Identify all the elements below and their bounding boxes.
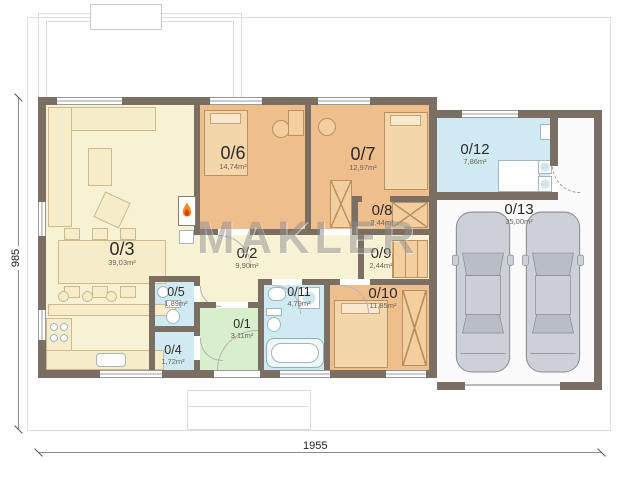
stool — [58, 291, 69, 302]
room-label: 0/12 7,86m² — [435, 142, 515, 166]
stove-burner — [50, 334, 58, 342]
car — [452, 210, 514, 379]
room-id: 0/3 — [82, 240, 162, 258]
room-area: 1,72m² — [143, 358, 203, 366]
chair — [318, 118, 336, 136]
window — [38, 202, 46, 236]
wall — [149, 276, 200, 282]
wall — [390, 196, 437, 202]
stool — [82, 291, 93, 302]
room-id: 0/5 — [146, 286, 206, 299]
fireplace — [178, 196, 196, 226]
window — [318, 97, 370, 105]
bathtub-inner — [271, 343, 319, 363]
wall — [248, 302, 264, 308]
chair — [120, 286, 136, 298]
window — [100, 370, 162, 378]
wall — [429, 97, 437, 378]
room-label: 0/7 12,97m² — [323, 145, 403, 172]
wall — [437, 192, 558, 200]
wall — [437, 382, 465, 390]
room-area: 11,85m² — [348, 302, 418, 310]
utility-unit — [538, 176, 552, 192]
room-id: 0/13 — [479, 202, 559, 217]
toilet-bowl — [166, 309, 180, 324]
room-id: 0/12 — [435, 142, 515, 157]
room-label: 0/5 1,89m² — [146, 286, 206, 307]
room-area: 35,00m² — [479, 218, 559, 226]
wall — [149, 326, 200, 332]
room-area: 7,86m² — [435, 158, 515, 166]
room-label: 0/6 14,74m² — [193, 144, 273, 171]
room-label: 0/10 11,85m² — [348, 286, 418, 310]
room-area: 3,11m² — [212, 332, 272, 340]
car — [522, 210, 584, 379]
room-id: 0/4 — [143, 344, 203, 357]
fireplace-flame-icon — [181, 201, 193, 224]
wall — [550, 110, 558, 166]
room-id: 0/6 — [193, 144, 273, 162]
bathtub — [266, 338, 324, 368]
dimension-line — [38, 452, 602, 453]
window — [462, 110, 518, 118]
porch-step — [187, 406, 309, 407]
window — [57, 97, 122, 105]
chimney — [90, 4, 162, 30]
stove-burner — [50, 323, 58, 331]
dimension-height: 985 — [10, 246, 22, 270]
entry-door — [214, 370, 260, 378]
pillow — [390, 115, 421, 126]
pillow — [210, 113, 241, 124]
room-label: 0/4 1,72m² — [143, 344, 203, 365]
room-area: 12,97m² — [323, 164, 403, 172]
room-label: 0/3 39,03m² — [82, 240, 162, 267]
sofa — [48, 107, 72, 227]
coffee-table — [88, 148, 112, 186]
stove-burner — [60, 323, 68, 331]
kitchen-sink — [96, 353, 126, 367]
garage-door — [465, 384, 560, 386]
fixture — [179, 230, 194, 244]
wall — [560, 382, 602, 390]
room-label: 0/11 4,79m² — [269, 286, 329, 307]
room-id: 0/1 — [212, 318, 272, 331]
window — [280, 370, 330, 378]
room-area: 39,03m² — [82, 259, 162, 267]
chair — [92, 228, 108, 240]
watermark: MAKLER — [197, 212, 419, 264]
dimension-width: 1955 — [300, 440, 330, 452]
wall — [194, 276, 200, 286]
porch-outline — [187, 390, 311, 430]
window — [386, 370, 426, 378]
desk — [288, 110, 304, 136]
room-id: 0/10 — [348, 286, 418, 301]
room-area: 1,89m² — [146, 300, 206, 308]
floor-plan: 0/3 39,03m² 0/6 14,74m² 0/7 12,97m² 0/8 … — [0, 0, 631, 477]
wall — [594, 110, 602, 390]
stove-burner — [60, 334, 68, 342]
window — [38, 310, 46, 340]
room-area: 4,79m² — [269, 300, 329, 308]
room-id: 0/11 — [269, 286, 329, 299]
terrace-outline — [46, 21, 234, 102]
chair — [64, 228, 80, 240]
room-area: 14,74m² — [193, 163, 273, 171]
room-id: 0/7 — [323, 145, 403, 163]
room-label: 0/1 3,11m² — [212, 318, 272, 339]
stool — [106, 291, 117, 302]
room-label: 0/13 35,00m² — [479, 202, 559, 226]
window — [210, 97, 262, 105]
